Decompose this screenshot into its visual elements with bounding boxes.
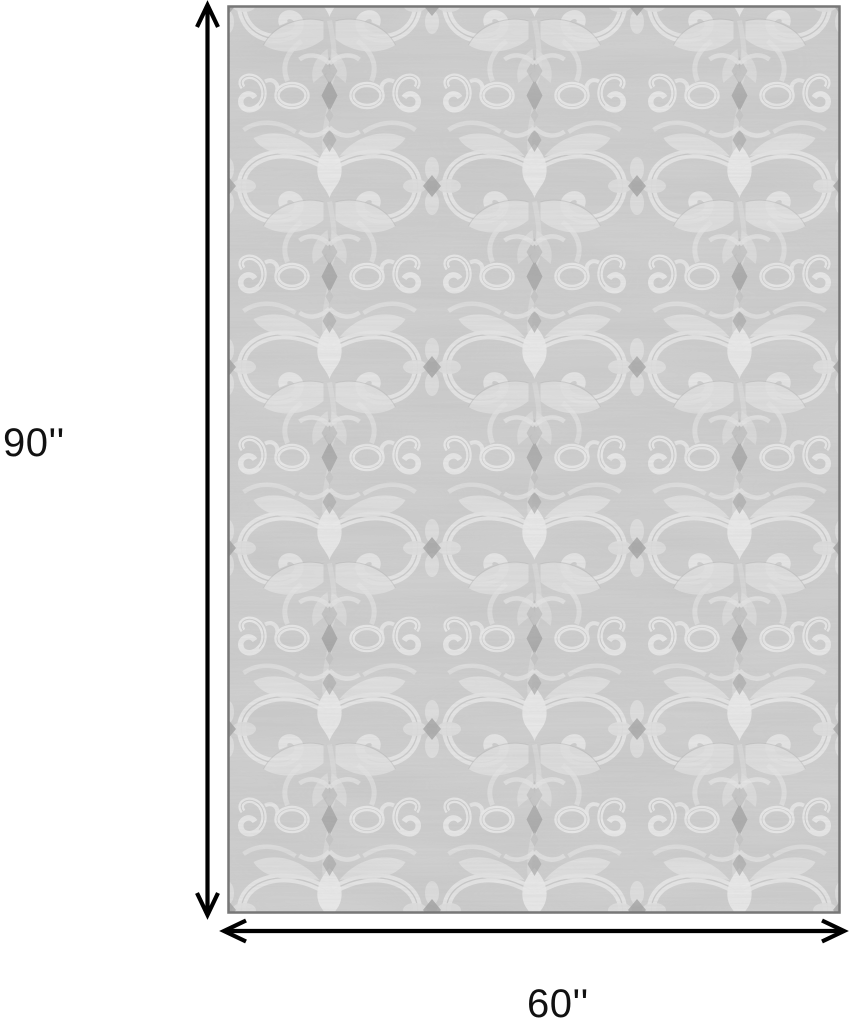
vertical-dimension-arrow-icon: [197, 5, 218, 915]
width-dimension-label: 60'': [527, 984, 589, 1020]
height-dimension-label: 90'': [3, 423, 65, 463]
dimension-arrows-layer: [0, 0, 850, 1020]
product-dimensions-figure: 90'' 60'': [0, 0, 850, 1020]
horizontal-dimension-arrow-icon: [224, 921, 844, 942]
